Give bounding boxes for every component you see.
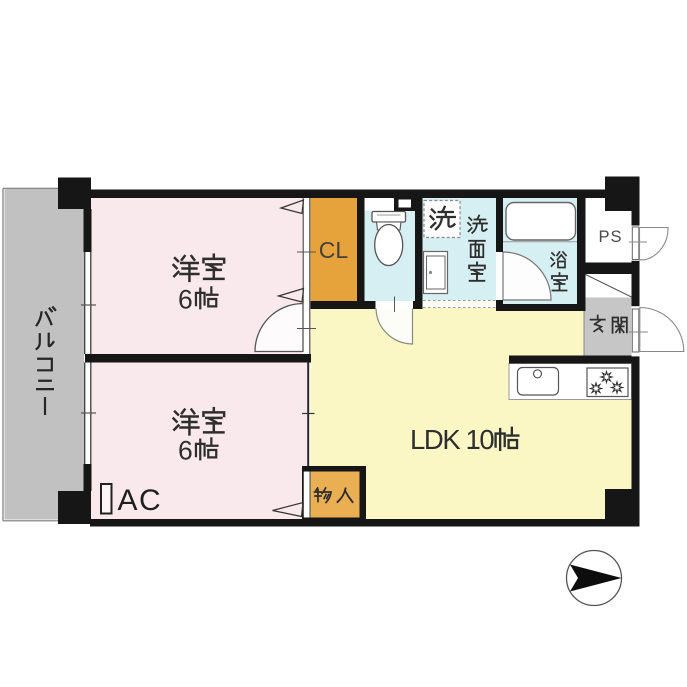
svg-text:AC: AC [118, 484, 163, 517]
svg-text:6: 6 [178, 285, 193, 315]
svg-text:CL: CL [319, 237, 349, 263]
svg-text:PS: PS [598, 228, 622, 246]
svg-text:6: 6 [178, 436, 193, 466]
svg-text:LDK 10: LDK 10 [410, 424, 494, 455]
